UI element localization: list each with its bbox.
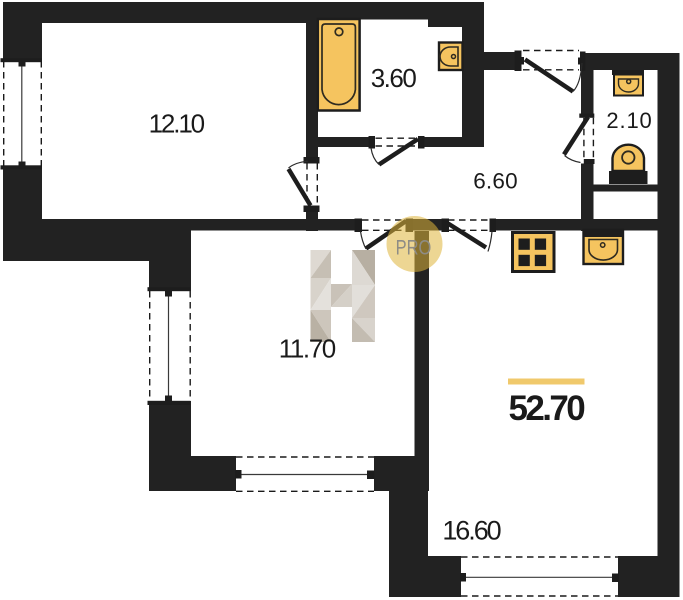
svg-text:2.10: 2.10 xyxy=(606,108,652,133)
svg-text:12.10: 12.10 xyxy=(149,109,205,139)
svg-text:16.60: 16.60 xyxy=(442,516,500,546)
svg-text:3.60: 3.60 xyxy=(371,63,417,93)
svg-text:6.60: 6.60 xyxy=(473,169,518,194)
svg-text:11.70: 11.70 xyxy=(279,334,336,364)
svg-text:52.70: 52.70 xyxy=(509,389,586,428)
svg-text:PRO: PRO xyxy=(396,236,432,259)
